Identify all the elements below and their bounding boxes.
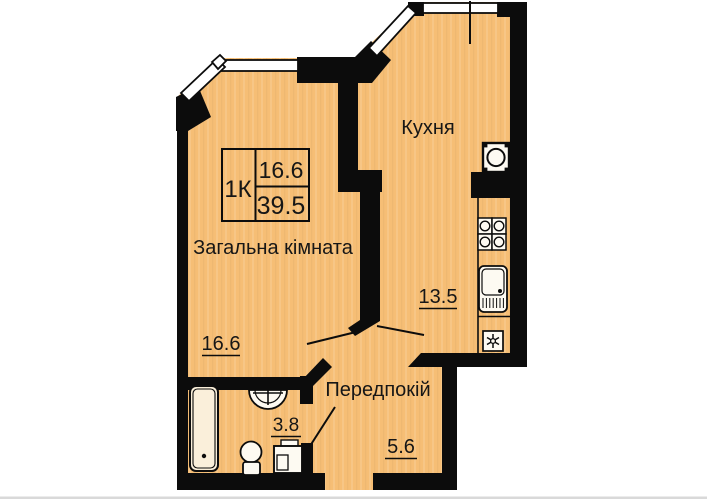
legend-apartment-type: 1К: [224, 176, 251, 203]
hallway-area-label: 5.6: [387, 436, 415, 458]
living-room-label: Загальна кімната: [193, 237, 354, 259]
floor-plan: 1К 16.6 39.5 Кухня 13.5 Загальна кімната…: [0, 0, 707, 500]
living-kitchen-wall-upper: [338, 80, 358, 178]
living-top-wall: [297, 57, 358, 83]
kitchen-right-wall: [510, 2, 527, 367]
floor-plan-page: 1К 16.6 39.5 Кухня 13.5 Загальна кімната…: [0, 0, 707, 500]
kitchen-room-label: Кухня: [401, 117, 455, 139]
washing-machine-icon: [483, 143, 509, 172]
bathroom-door-stub: [300, 376, 313, 404]
page-divider: [0, 497, 707, 500]
kitchen-bottom-wall: [408, 353, 527, 367]
bathroom-area-label: 3.8: [273, 415, 299, 436]
kitchen-top-window: [423, 3, 498, 13]
living-kitchen-wall-lower: [360, 178, 380, 318]
legend-total-area: 39.5: [257, 192, 306, 220]
hallway-label: Передпокій: [325, 379, 430, 401]
kitchen-sink-icon: [479, 266, 507, 312]
stove-icon: [478, 218, 506, 250]
legend-living-area: 16.6: [259, 157, 304, 183]
hallway-right-wall: [442, 360, 457, 490]
kitchen-top-corner: [497, 2, 527, 17]
left-wall: [177, 112, 188, 490]
living-area-label: 16.6: [202, 333, 241, 355]
vent-icon: [483, 331, 503, 351]
kitchen-area-label: 13.5: [419, 286, 458, 308]
living-top-window: [220, 60, 298, 71]
bathtub-icon: [190, 386, 218, 471]
toilet-icon: [241, 442, 262, 476]
kitchen-counter-niche-wall: [471, 172, 510, 198]
